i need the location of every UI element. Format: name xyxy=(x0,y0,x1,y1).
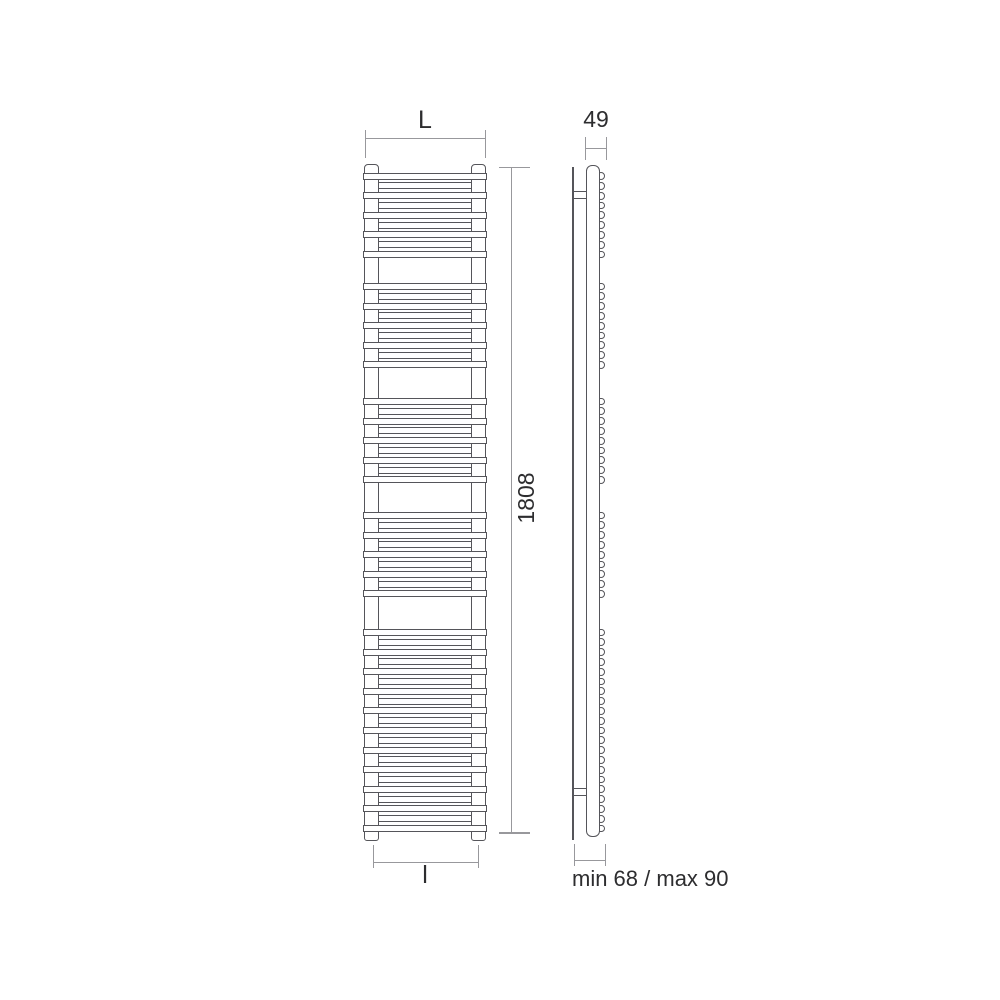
radiator-bar xyxy=(378,815,472,822)
radiator-bar xyxy=(378,447,472,454)
dim-tick-bottom xyxy=(499,832,530,833)
radiator-bar xyxy=(378,332,472,339)
radiator-bar xyxy=(378,717,472,724)
radiator-bar xyxy=(363,283,487,290)
radiator-bar xyxy=(378,776,472,783)
radiator-bar xyxy=(363,476,487,483)
radiator-bar xyxy=(363,437,487,444)
radiator-bar xyxy=(378,408,472,415)
dim-line-width-top xyxy=(365,138,485,139)
radiator-bar xyxy=(378,639,472,646)
dim-tick-right xyxy=(605,844,606,866)
radiator-bar xyxy=(363,786,487,793)
radiator-bar xyxy=(378,522,472,529)
radiator-bar xyxy=(363,825,487,832)
radiator-bar xyxy=(378,312,472,319)
radiator-bar xyxy=(363,457,487,464)
radiator-bar xyxy=(378,541,472,548)
radiator-bar xyxy=(363,805,487,812)
radiator-bar xyxy=(363,747,487,754)
radiator-bar xyxy=(363,688,487,695)
radiator-bar xyxy=(363,766,487,773)
dim-label-width-top: L xyxy=(385,106,465,135)
radiator-bar xyxy=(363,231,487,238)
dim-label-height: 1808 xyxy=(513,457,537,539)
radiator-bar xyxy=(363,512,487,519)
radiator-bar xyxy=(378,561,472,568)
radiator-bar xyxy=(378,293,472,300)
side-collector-profile xyxy=(586,165,600,837)
radiator-bar xyxy=(363,571,487,578)
radiator-bar xyxy=(363,707,487,714)
radiator-bar xyxy=(363,342,487,349)
radiator-bar xyxy=(363,251,487,258)
radiator-bar xyxy=(378,658,472,665)
radiator-bar xyxy=(363,418,487,425)
radiator-bar xyxy=(363,590,487,597)
radiator-bar xyxy=(378,241,472,248)
dim-tick-left xyxy=(373,845,374,868)
dim-tick-left xyxy=(574,844,575,866)
radiator-bar xyxy=(378,796,472,803)
radiator-bar xyxy=(378,467,472,474)
radiator-bar xyxy=(363,361,487,368)
radiator-bar xyxy=(378,222,472,229)
radiator-bar xyxy=(378,581,472,588)
radiator-bar xyxy=(363,303,487,310)
dim-tick-right xyxy=(485,130,486,158)
radiator-bar xyxy=(363,398,487,405)
collector-tube-left xyxy=(364,164,379,841)
radiator-bar xyxy=(378,352,472,359)
wall-line xyxy=(572,167,574,840)
radiator-bar xyxy=(378,427,472,434)
radiator-bar xyxy=(378,756,472,763)
dim-tick-top xyxy=(499,167,530,168)
radiator-bar xyxy=(378,202,472,209)
dim-line-depth xyxy=(585,148,607,149)
radiator-bar xyxy=(378,698,472,705)
radiator-bar xyxy=(378,182,472,189)
dim-tick-right xyxy=(606,137,607,160)
radiator-bar xyxy=(363,727,487,734)
radiator-bar xyxy=(378,678,472,685)
dim-line-height xyxy=(511,167,512,833)
dim-label-wall-distance: min 68 / max 90 xyxy=(572,866,729,892)
radiator-bar xyxy=(363,532,487,539)
dim-label-depth: 49 xyxy=(576,106,616,133)
radiator-bar xyxy=(363,629,487,636)
radiator-bar xyxy=(363,192,487,199)
radiator-bar xyxy=(363,649,487,656)
mounting-bracket-top xyxy=(573,191,587,199)
dim-line-wall-distance xyxy=(574,860,606,861)
radiator-bar xyxy=(363,322,487,329)
radiator-bar xyxy=(363,551,487,558)
dim-tick-left xyxy=(365,130,366,158)
drawing-canvas: L l 1808 49 min 68 / max 90 xyxy=(0,0,1000,1000)
dim-tick-left xyxy=(585,137,586,160)
radiator-bar xyxy=(378,737,472,744)
radiator-bar xyxy=(363,173,487,180)
dim-label-width-bottom: l xyxy=(385,861,465,890)
collector-tube-right xyxy=(471,164,486,841)
radiator-bar xyxy=(363,212,487,219)
dim-tick-right xyxy=(478,845,479,868)
radiator-bar xyxy=(363,668,487,675)
mounting-bracket-bottom xyxy=(573,788,587,796)
